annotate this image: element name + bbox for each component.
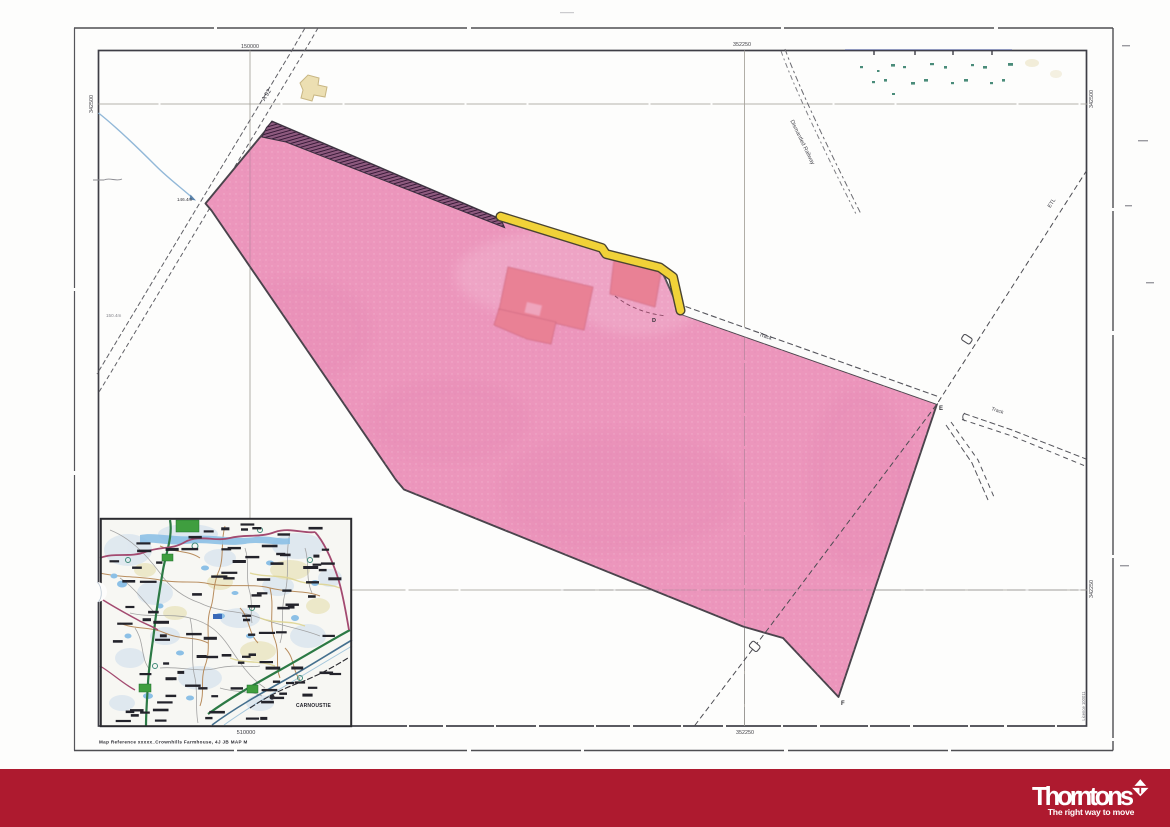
- svg-text:352250: 352250: [736, 730, 754, 736]
- svg-text:E: E: [939, 406, 943, 412]
- svg-text:342250: 342250: [1089, 580, 1095, 598]
- svg-text:150000: 150000: [241, 44, 259, 50]
- svg-text:342500: 342500: [1089, 90, 1095, 108]
- svg-text:The right way to move: The right way to move: [1048, 807, 1135, 817]
- svg-text:Map Reference xxxxx_Crownhill: Map Reference xxxxx_Crownhills Farmhouse…: [99, 740, 248, 745]
- svg-text:510000: 510000: [237, 730, 256, 736]
- svg-text:352250: 352250: [733, 42, 751, 48]
- svg-text:F: F: [841, 701, 845, 707]
- svg-text:Licence 100011: Licence 100011: [1081, 691, 1086, 721]
- svg-text:146.4m: 146.4m: [177, 197, 192, 202]
- svg-text:342500: 342500: [89, 95, 95, 113]
- svg-text:D: D: [652, 318, 656, 324]
- svg-text:CARNOUSTIE: CARNOUSTIE: [296, 703, 332, 709]
- svg-text:150.4m: 150.4m: [106, 313, 121, 318]
